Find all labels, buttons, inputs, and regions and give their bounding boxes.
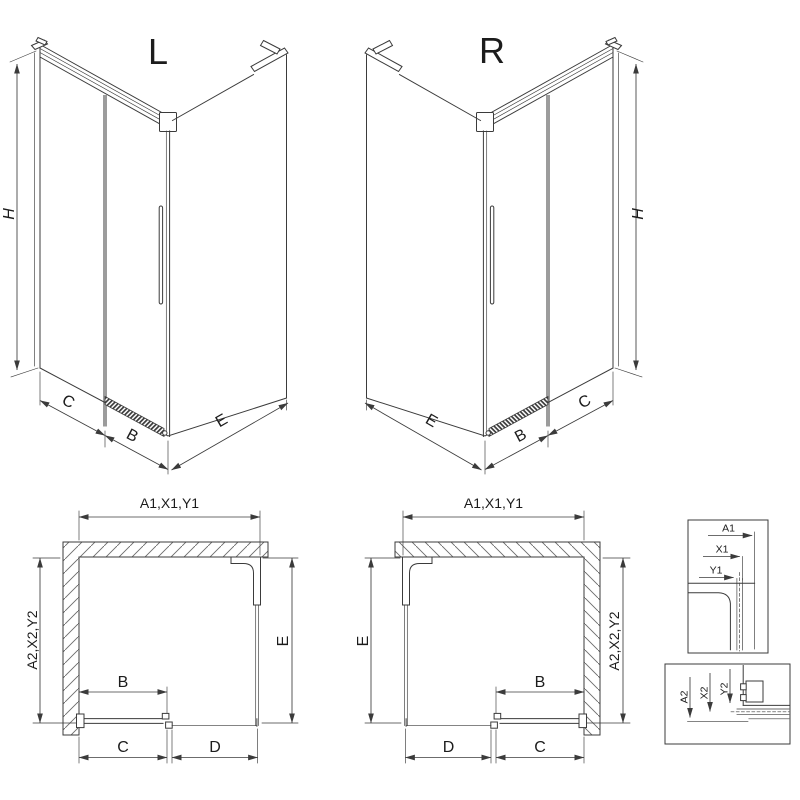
detail-bracket — [746, 681, 763, 702]
plan-right-dim-a1: A1,X1,Y1 — [464, 495, 523, 511]
detail-inset-top: A1 X1 Y1 — [688, 520, 768, 653]
drawing-canvas: L H C B E R H E B C A1,X1,Y1 A2,X2,Y2 E … — [0, 0, 800, 800]
iso-view-left: L H C B E — [1, 31, 288, 474]
plan-view-right: A1,X1,Y1 A2,X2,Y2 E B D C — [355, 495, 630, 763]
detail-dim-x1: X1 — [716, 544, 729, 556]
iso-right-dim-c: C — [576, 392, 594, 412]
detail-top-border — [688, 520, 768, 653]
plan-right-dim-e: E — [355, 636, 372, 647]
iso-left-dim-e: E — [213, 411, 231, 431]
iso-left-dim-c: C — [59, 392, 77, 412]
detail-bracket-tab-a — [741, 684, 747, 690]
plan-right-dim-b: B — [535, 674, 546, 691]
plan-left-dim-d: D — [209, 739, 221, 756]
plan-left-dim-e: E — [275, 636, 292, 647]
plan-right-dim-d: D — [443, 739, 455, 756]
detail-bracket-tab-b — [741, 695, 747, 701]
plan-left-dim-a2: A2,X2,Y2 — [24, 610, 40, 669]
detail-dim-a2: A2 — [679, 690, 691, 703]
plan-right-dim-a2: A2,X2,Y2 — [606, 611, 622, 670]
plan-view-left: A1,X1,Y1 A2,X2,Y2 E B C D — [24, 495, 298, 763]
detail-profile-body — [689, 593, 730, 650]
detail-dim-y2: Y2 — [719, 682, 731, 695]
iso-right-title: R — [479, 30, 505, 71]
iso-right-dim-h: H — [630, 208, 647, 220]
plan-left-dim-c: C — [117, 739, 129, 756]
iso-left-dim-b: B — [123, 426, 140, 446]
detail-inset-bottom: A2 X2 Y2 — [665, 664, 790, 744]
iso-right-dim-b: B — [512, 426, 529, 446]
iso-left-dim-h: H — [1, 208, 18, 220]
plan-left-dim-b: B — [118, 674, 129, 691]
detail-dim-y1: Y1 — [710, 565, 723, 577]
detail-dim-x2: X2 — [699, 686, 711, 699]
iso-left-title: L — [148, 31, 168, 72]
plan-left-dim-a1: A1,X1,Y1 — [140, 495, 199, 511]
detail-dim-a1: A1 — [722, 523, 735, 535]
shower-enclosure-technical-drawing: L H C B E R H E B C A1,X1,Y1 A2,X2,Y2 E … — [0, 0, 800, 800]
iso-view-right: R H E B C — [365, 30, 647, 474]
plan-right-dim-c: C — [534, 739, 546, 756]
